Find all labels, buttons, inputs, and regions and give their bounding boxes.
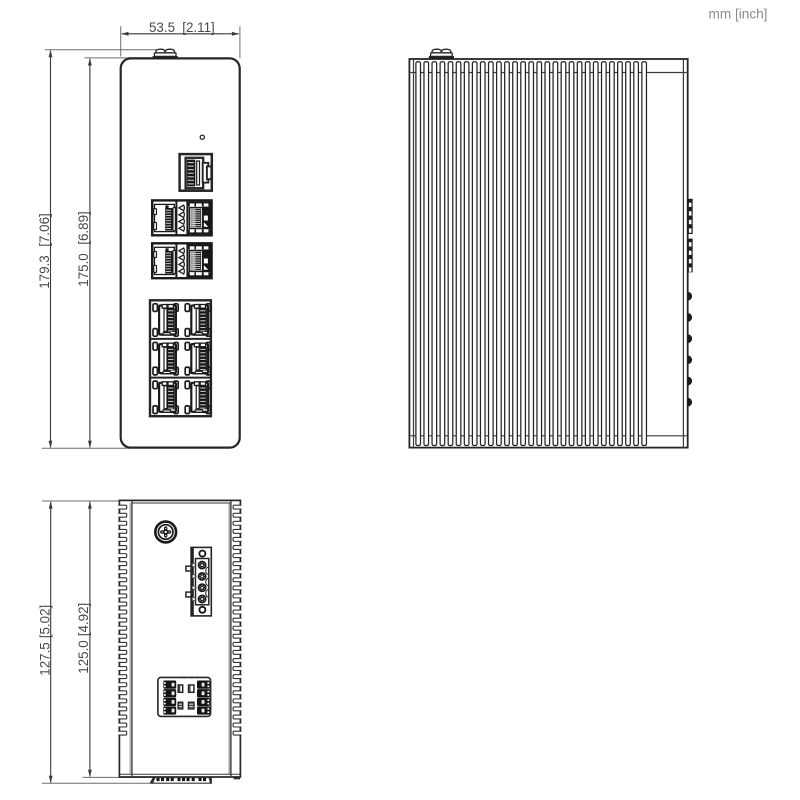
svg-text:[6.89]: [6.89]	[76, 211, 91, 245]
svg-text:175.0: 175.0	[76, 253, 91, 287]
svg-text:[5.02]: [5.02]	[37, 605, 52, 639]
svg-text:125.0: 125.0	[76, 640, 91, 674]
svg-text:179.3: 179.3	[37, 255, 52, 289]
svg-text:mm [inch]: mm [inch]	[709, 6, 768, 21]
svg-text:[7.06]: [7.06]	[37, 213, 52, 247]
svg-text:[2.11]: [2.11]	[182, 20, 215, 35]
svg-text:53.5: 53.5	[149, 20, 175, 35]
svg-text:127.5: 127.5	[37, 642, 52, 676]
svg-text:[4.92]: [4.92]	[76, 603, 91, 637]
